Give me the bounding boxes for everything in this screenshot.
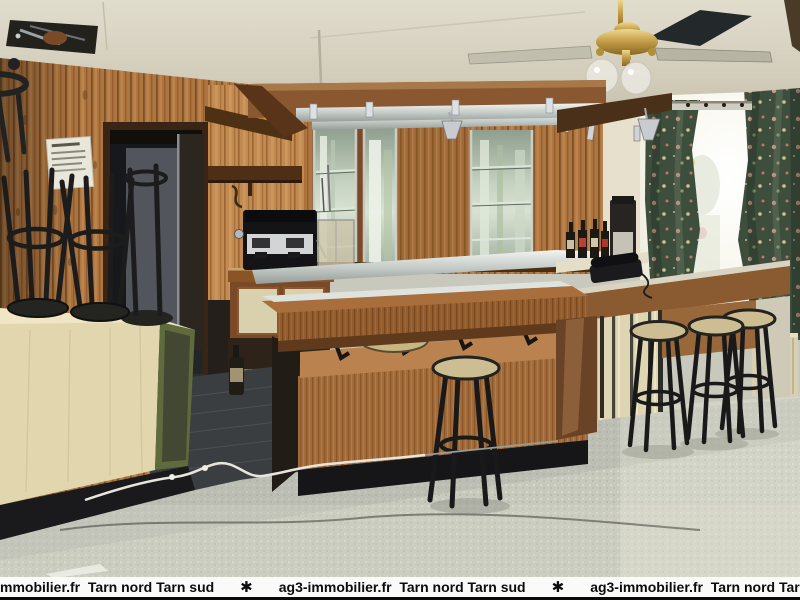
coffee-maker — [610, 196, 636, 261]
watermark-text: mmobilier.fr Tarn nord Tarn sud — [0, 579, 214, 595]
fan-globe — [621, 62, 651, 94]
watermark-separator-icon: ✱ — [240, 578, 253, 596]
mirror-display-case-mid — [365, 128, 396, 268]
photo-scene — [0, 0, 800, 600]
watermark-separator-icon: ✱ — [552, 578, 565, 596]
espresso-machine — [235, 210, 327, 270]
back-bar-center-panel — [396, 126, 471, 272]
watermark-text: ag3-immobilier.fr Tarn nord Tarn sud — [279, 579, 526, 595]
mirror-display-case-right — [471, 130, 532, 266]
bar-interior-photo: mmobilier.fr Tarn nord Tarn sud ✱ ag3-im… — [0, 0, 800, 600]
watermark-text: ag3-immobilier.fr Tarn nord Tarn sud — [590, 579, 800, 595]
watermark-banner: mmobilier.fr Tarn nord Tarn sud ✱ ag3-im… — [0, 577, 800, 600]
